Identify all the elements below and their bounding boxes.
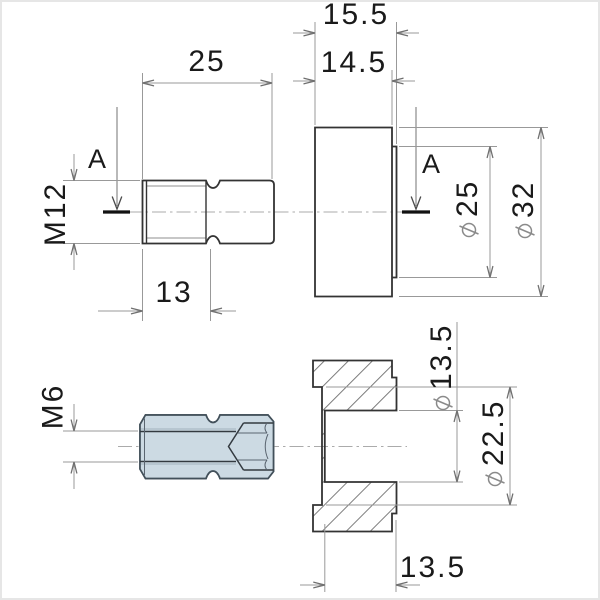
section-label-right: A bbox=[422, 149, 440, 179]
dim-text-m12: M12 bbox=[39, 182, 72, 246]
dim-text-d13-5: 13.5 bbox=[425, 324, 458, 390]
cutting-plane-right: A bbox=[402, 107, 440, 212]
dim-bore-diameter: 13.5 bbox=[399, 322, 463, 482]
dim-text-13: 13 bbox=[155, 276, 192, 309]
diameter-symbol bbox=[434, 397, 453, 410]
dim-bolt-length: 25 bbox=[143, 45, 273, 179]
page-border bbox=[1, 1, 599, 599]
dim-text-d32: 32 bbox=[507, 181, 540, 218]
dim-text-13-5: 13.5 bbox=[400, 551, 466, 584]
dim-thread-length: 13 bbox=[98, 249, 236, 321]
dim-text-d22-5: 22.5 bbox=[477, 400, 510, 466]
section-label-left: A bbox=[88, 144, 106, 174]
diameter-symbol bbox=[516, 225, 535, 238]
dim-text-14-5: 14.5 bbox=[321, 46, 387, 79]
section-view-adapter bbox=[140, 415, 274, 479]
drawing-canvas: A A 25 13 M12 bbox=[0, 0, 600, 600]
diameter-symbol bbox=[486, 473, 505, 486]
dim-text-m6: M6 bbox=[37, 384, 70, 430]
dim-text-25: 25 bbox=[188, 45, 225, 78]
adapter-outline bbox=[140, 415, 274, 479]
dim-text-d25: 25 bbox=[451, 180, 484, 217]
dim-adapter-thread: M6 bbox=[37, 384, 139, 489]
cutting-plane-left: A bbox=[88, 107, 130, 212]
technical-drawing: A A 25 13 M12 bbox=[0, 0, 600, 600]
diameter-symbol bbox=[460, 224, 479, 237]
dim-text-15-5: 15.5 bbox=[323, 0, 389, 31]
